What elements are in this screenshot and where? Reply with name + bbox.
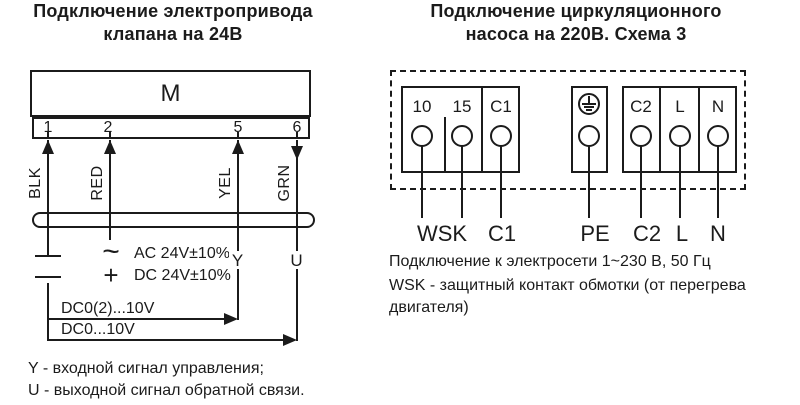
terminal-1-tick — [47, 132, 49, 139]
terminal-l-screw — [669, 125, 691, 147]
wire-c2 — [640, 145, 642, 218]
wire-yel — [237, 140, 239, 320]
block1-divider — [481, 88, 483, 171]
terminal-strip — [32, 117, 310, 139]
motor-label: M — [161, 80, 181, 108]
earth-ground-bar2 — [584, 106, 594, 108]
block3-cell-c2-label: C2 — [626, 97, 656, 117]
bottom-label-pe: PE — [565, 221, 625, 246]
dc-plus-icon: + — [95, 262, 127, 288]
wire-grn — [296, 140, 298, 341]
block1-partial-divider — [444, 117, 446, 171]
wire-10 — [421, 145, 423, 218]
legend-line-u: U - выходной сигнал обратной связи. — [28, 382, 305, 400]
wire-yel-label: YEL — [218, 161, 234, 205]
wire-grn-arrow-down-icon — [291, 146, 303, 160]
wire-15 — [461, 145, 463, 218]
wire-pe — [588, 145, 590, 218]
earth-ground-bar1 — [582, 103, 596, 105]
wire-blk-label: BLK — [28, 161, 44, 205]
wire-blk-arrow-up-icon — [42, 140, 54, 154]
wire-yel-arrow-up-icon — [232, 140, 244, 154]
wire-n — [717, 145, 719, 218]
block1-cell-10-label: 10 — [407, 97, 437, 117]
terminal-15-screw — [451, 125, 473, 147]
branch1-label: DC0(2)...10V — [61, 300, 154, 318]
branch2-arrow-icon — [283, 334, 297, 346]
bottom-label-n: N — [688, 221, 748, 246]
signal-y-label: Y — [229, 251, 246, 269]
branch2-label: DC0...10V — [61, 321, 135, 339]
block1-cell-c1-label: C1 — [486, 97, 516, 117]
signal-u-label: U — [288, 251, 305, 269]
terminal-pe-screw — [578, 125, 600, 147]
terminal-2-label: 2 — [98, 119, 118, 137]
legend-line-y: Y - входной сигнал управления; — [28, 360, 264, 378]
left-diagram-title: Подключение электропривода клапана на 24… — [0, 0, 346, 46]
terminal-n-screw — [707, 125, 729, 147]
wire-c1 — [500, 145, 502, 218]
wire-red-arrow-up-icon — [104, 140, 116, 154]
terminal-c2-screw — [630, 125, 652, 147]
wire-l — [679, 145, 681, 218]
block3-divider-1 — [659, 88, 661, 171]
block1-cell-15-label: 15 — [447, 97, 477, 117]
wire-blk — [47, 140, 49, 245]
terminal-c1-screw — [490, 125, 512, 147]
block3-cell-n-label: N — [703, 97, 733, 117]
ac-voltage-text: AC 24V±10% — [134, 245, 230, 263]
block3-divider-2 — [698, 88, 700, 171]
terminal-5-tick — [237, 132, 239, 139]
block3-cell-l-label: L — [665, 97, 695, 117]
terminal-10-screw — [411, 125, 433, 147]
left-title-line1: Подключение электропривода — [0, 0, 346, 23]
right-diagram-title: Подключение циркуляционного насоса на 22… — [398, 0, 754, 46]
branch1-line — [48, 318, 225, 320]
terminal-6-tick — [296, 132, 298, 139]
terminal-2-tick — [109, 132, 111, 139]
note-line-1: Подключение к электросети 1~230 В, 50 Гц — [389, 253, 711, 271]
right-title-line1: Подключение циркуляционного — [398, 0, 754, 23]
right-title-line2: насоса на 220В. Схема 3 — [398, 23, 754, 46]
bottom-label-wsk: WSK — [412, 221, 472, 246]
wire-grn-label: GRN — [277, 161, 293, 205]
branch2-line — [48, 339, 284, 341]
note-line-3: двигателя) — [389, 299, 469, 317]
bottom-label-c1: C1 — [472, 221, 532, 246]
dc-voltage-text: DC 24V±10% — [134, 267, 231, 285]
wire-blk-lower — [47, 283, 49, 341]
common-ac-symbol-icon — [35, 255, 61, 257]
wire-red-label: RED — [90, 161, 106, 205]
common-dc-symbol-icon — [35, 276, 61, 278]
branch1-arrow-icon — [224, 313, 238, 325]
cable-sheath — [32, 212, 315, 228]
motor-box: M — [30, 70, 311, 117]
left-title-line2: клапана на 24В — [0, 23, 346, 46]
wiring-diagram-page: Подключение электропривода клапана на 24… — [0, 0, 800, 405]
note-line-2: WSK - защитный контакт обмотки (от перег… — [389, 277, 746, 295]
earth-ground-bar3 — [586, 109, 592, 111]
